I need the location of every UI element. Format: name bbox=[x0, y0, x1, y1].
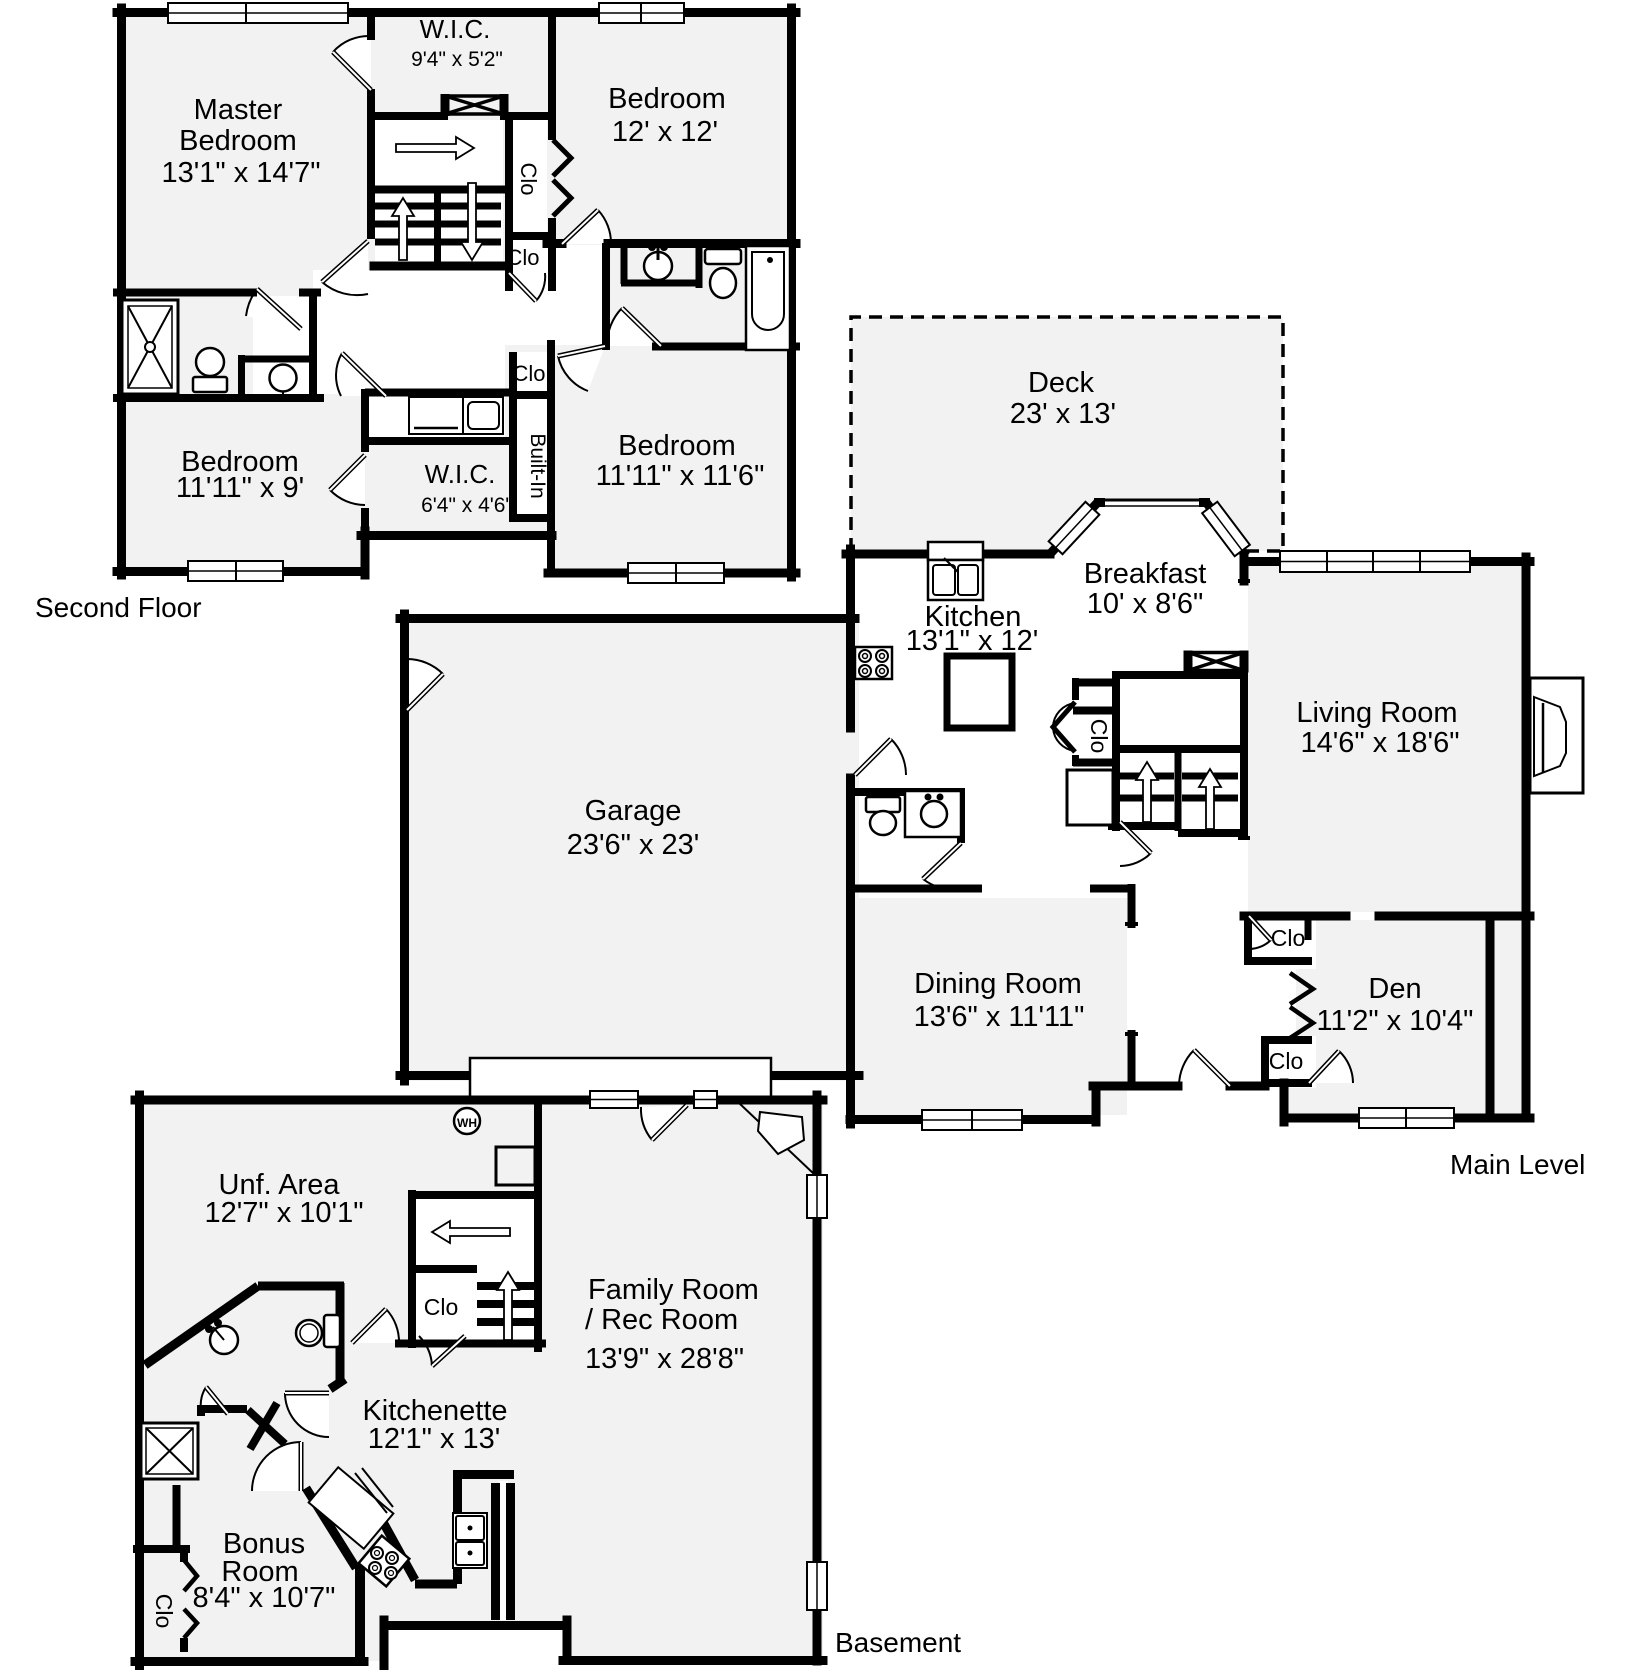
svg-text:Bedroom: Bedroom bbox=[608, 83, 726, 115]
svg-text:Clo: Clo bbox=[1086, 719, 1112, 754]
svg-text:13'6" x 11'11": 13'6" x 11'11" bbox=[914, 1001, 1085, 1033]
svg-text:23' x 13': 23' x 13' bbox=[1010, 398, 1116, 430]
svg-text:11'11" x 11'6": 11'11" x 11'6" bbox=[596, 460, 765, 492]
svg-text:9'4" x 5'2": 9'4" x 5'2" bbox=[411, 48, 503, 71]
svg-text:Clo: Clo bbox=[1271, 925, 1306, 951]
svg-text:/ Rec Room: / Rec Room bbox=[585, 1304, 738, 1336]
svg-text:W.I.C.: W.I.C. bbox=[425, 459, 496, 489]
svg-text:Family Room: Family Room bbox=[588, 1274, 759, 1306]
svg-text:Dining Room: Dining Room bbox=[914, 968, 1082, 1000]
svg-text:Bedroom: Bedroom bbox=[179, 125, 297, 157]
svg-text:8'4" x 10'7": 8'4" x 10'7" bbox=[193, 1582, 336, 1614]
svg-text:12'7" x 10'1": 12'7" x 10'1" bbox=[204, 1197, 363, 1229]
svg-text:Clo: Clo bbox=[516, 162, 541, 195]
svg-text:13'9" x 28'8": 13'9" x 28'8" bbox=[585, 1343, 744, 1375]
svg-text:11'2" x 10'4": 11'2" x 10'4" bbox=[1317, 1005, 1474, 1037]
svg-text:Built-In: Built-In bbox=[526, 433, 549, 498]
svg-text:Second Floor: Second Floor bbox=[35, 592, 202, 623]
svg-text:Breakfast: Breakfast bbox=[1084, 558, 1207, 590]
svg-text:12' x 12': 12' x 12' bbox=[612, 116, 718, 148]
svg-text:Master: Master bbox=[194, 94, 283, 126]
svg-text:Clo: Clo bbox=[151, 1594, 177, 1629]
svg-text:Living Room: Living Room bbox=[1296, 697, 1457, 729]
svg-text:6'4" x 4'6": 6'4" x 4'6" bbox=[421, 494, 513, 517]
svg-text:13'1" x 14'7": 13'1" x 14'7" bbox=[161, 157, 320, 189]
svg-text:23'6" x 23': 23'6" x 23' bbox=[567, 829, 700, 861]
svg-text:10' x 8'6": 10' x 8'6" bbox=[1087, 588, 1204, 620]
svg-text:WH: WH bbox=[457, 1116, 477, 1130]
svg-text:Den: Den bbox=[1368, 973, 1421, 1005]
svg-text:Main Level: Main Level bbox=[1450, 1149, 1585, 1180]
svg-text:12'1" x 13': 12'1" x 13' bbox=[368, 1423, 501, 1455]
svg-text:Garage: Garage bbox=[585, 795, 682, 827]
svg-text:Deck: Deck bbox=[1028, 367, 1095, 399]
svg-text:13'1" x 12': 13'1" x 12' bbox=[906, 625, 1039, 657]
svg-text:Basement: Basement bbox=[835, 1627, 961, 1658]
svg-text:Clo: Clo bbox=[512, 361, 545, 386]
svg-text:14'6" x 18'6": 14'6" x 18'6" bbox=[1300, 727, 1459, 759]
svg-text:Clo: Clo bbox=[506, 245, 539, 270]
svg-text:Clo: Clo bbox=[1269, 1048, 1304, 1074]
svg-text:11'11" x 9': 11'11" x 9' bbox=[176, 472, 304, 504]
svg-text:Clo: Clo bbox=[424, 1294, 459, 1320]
svg-text:Bedroom: Bedroom bbox=[618, 430, 736, 462]
svg-text:W.I.C.: W.I.C. bbox=[420, 14, 491, 44]
